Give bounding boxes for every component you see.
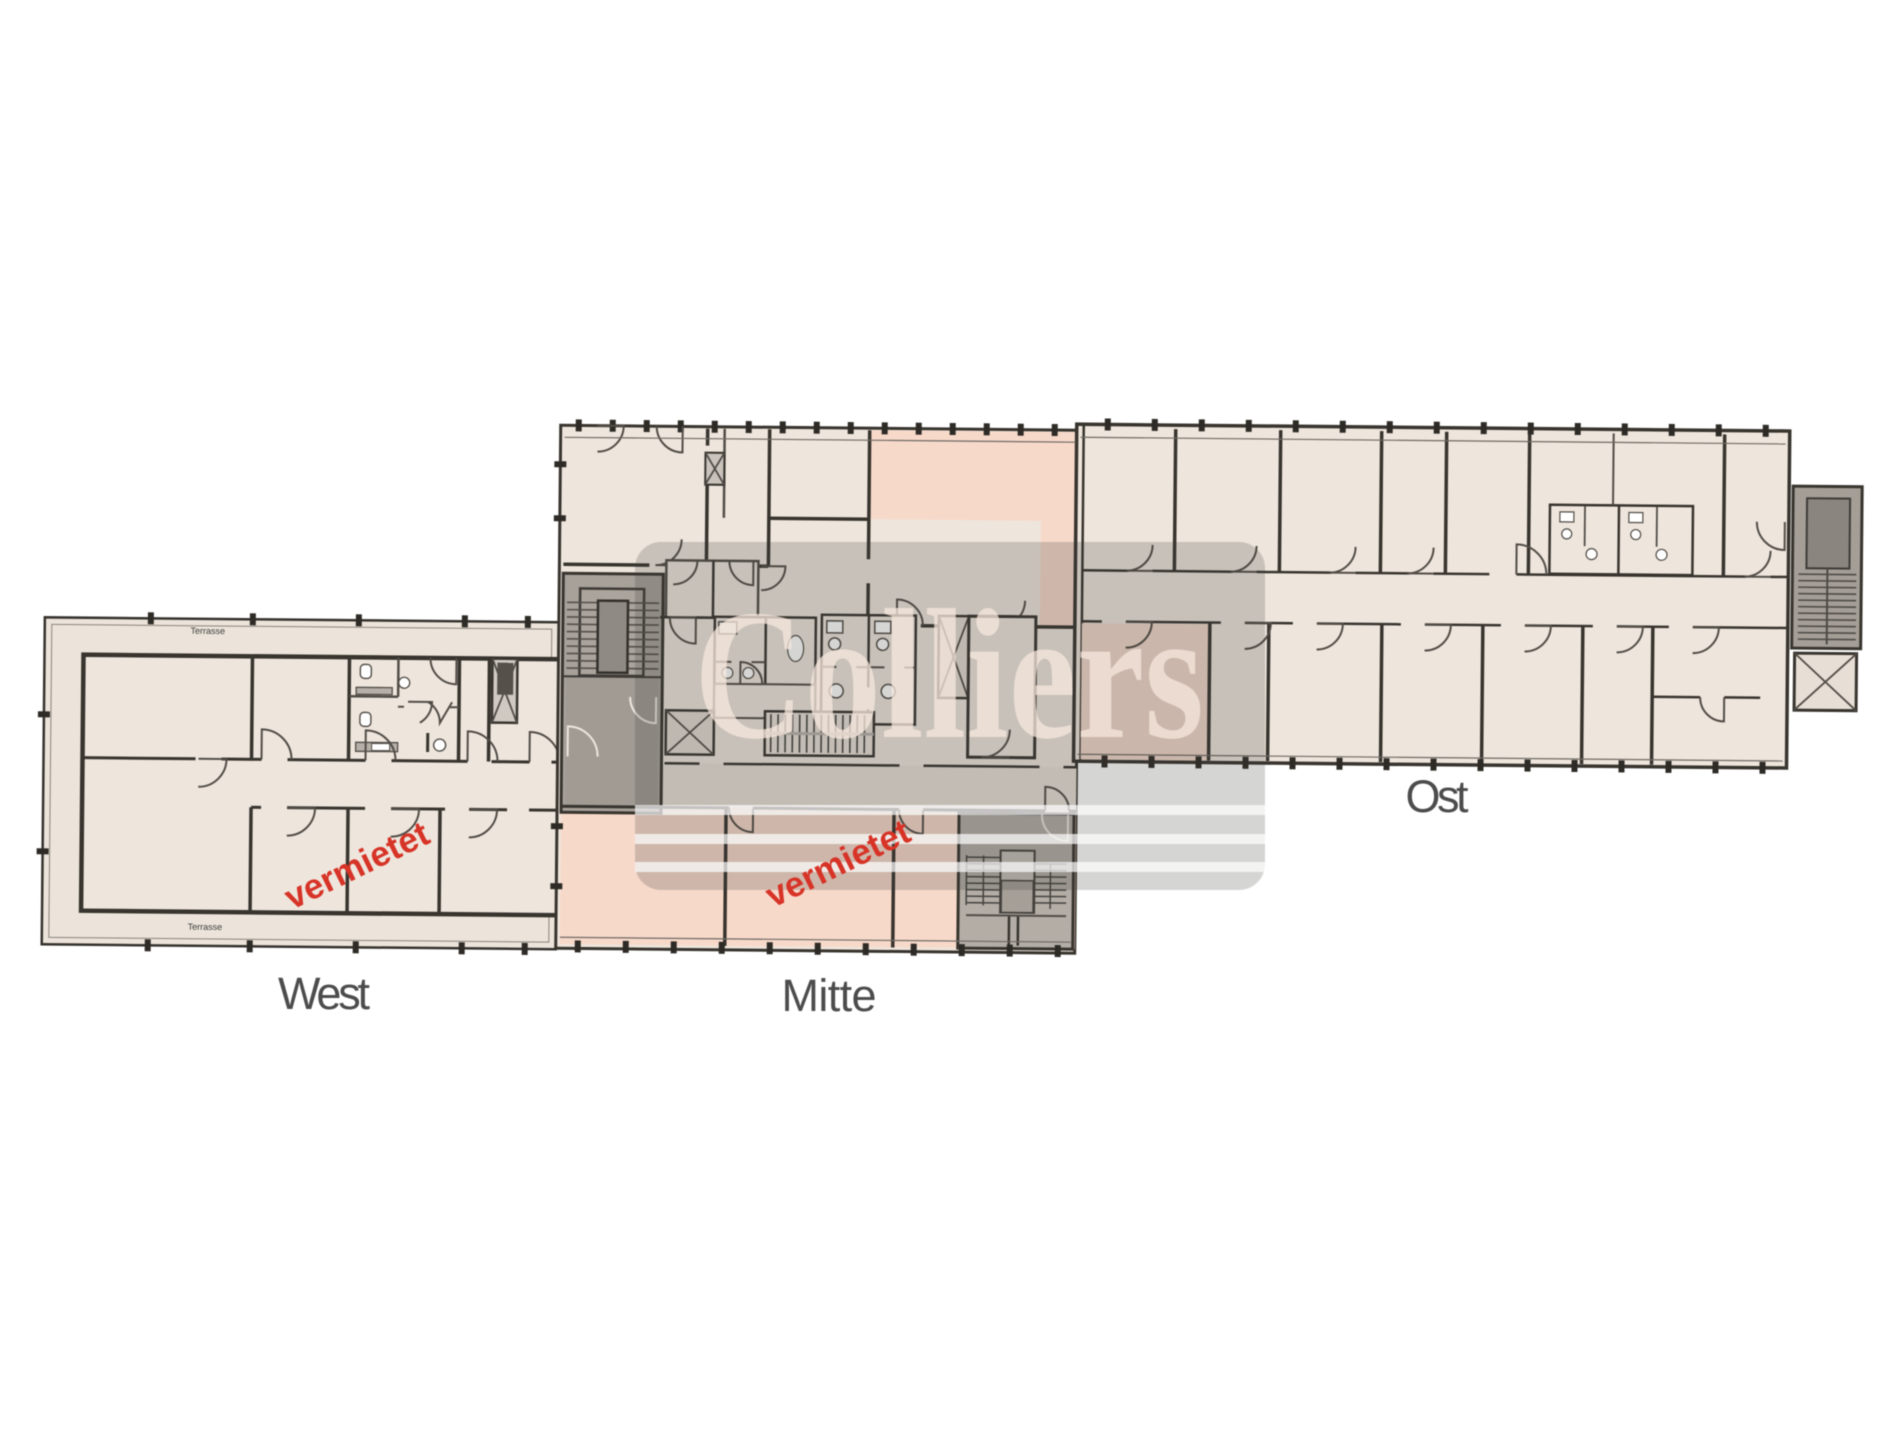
svg-text:Terrasse: Terrasse xyxy=(190,626,225,636)
svg-text:West: West xyxy=(278,968,370,1019)
svg-text:Colliers: Colliers xyxy=(694,572,1204,778)
svg-text:Mitte: Mitte xyxy=(782,970,877,1021)
svg-text:Terrasse: Terrasse xyxy=(188,922,223,932)
svg-text:Ost: Ost xyxy=(1406,771,1469,822)
